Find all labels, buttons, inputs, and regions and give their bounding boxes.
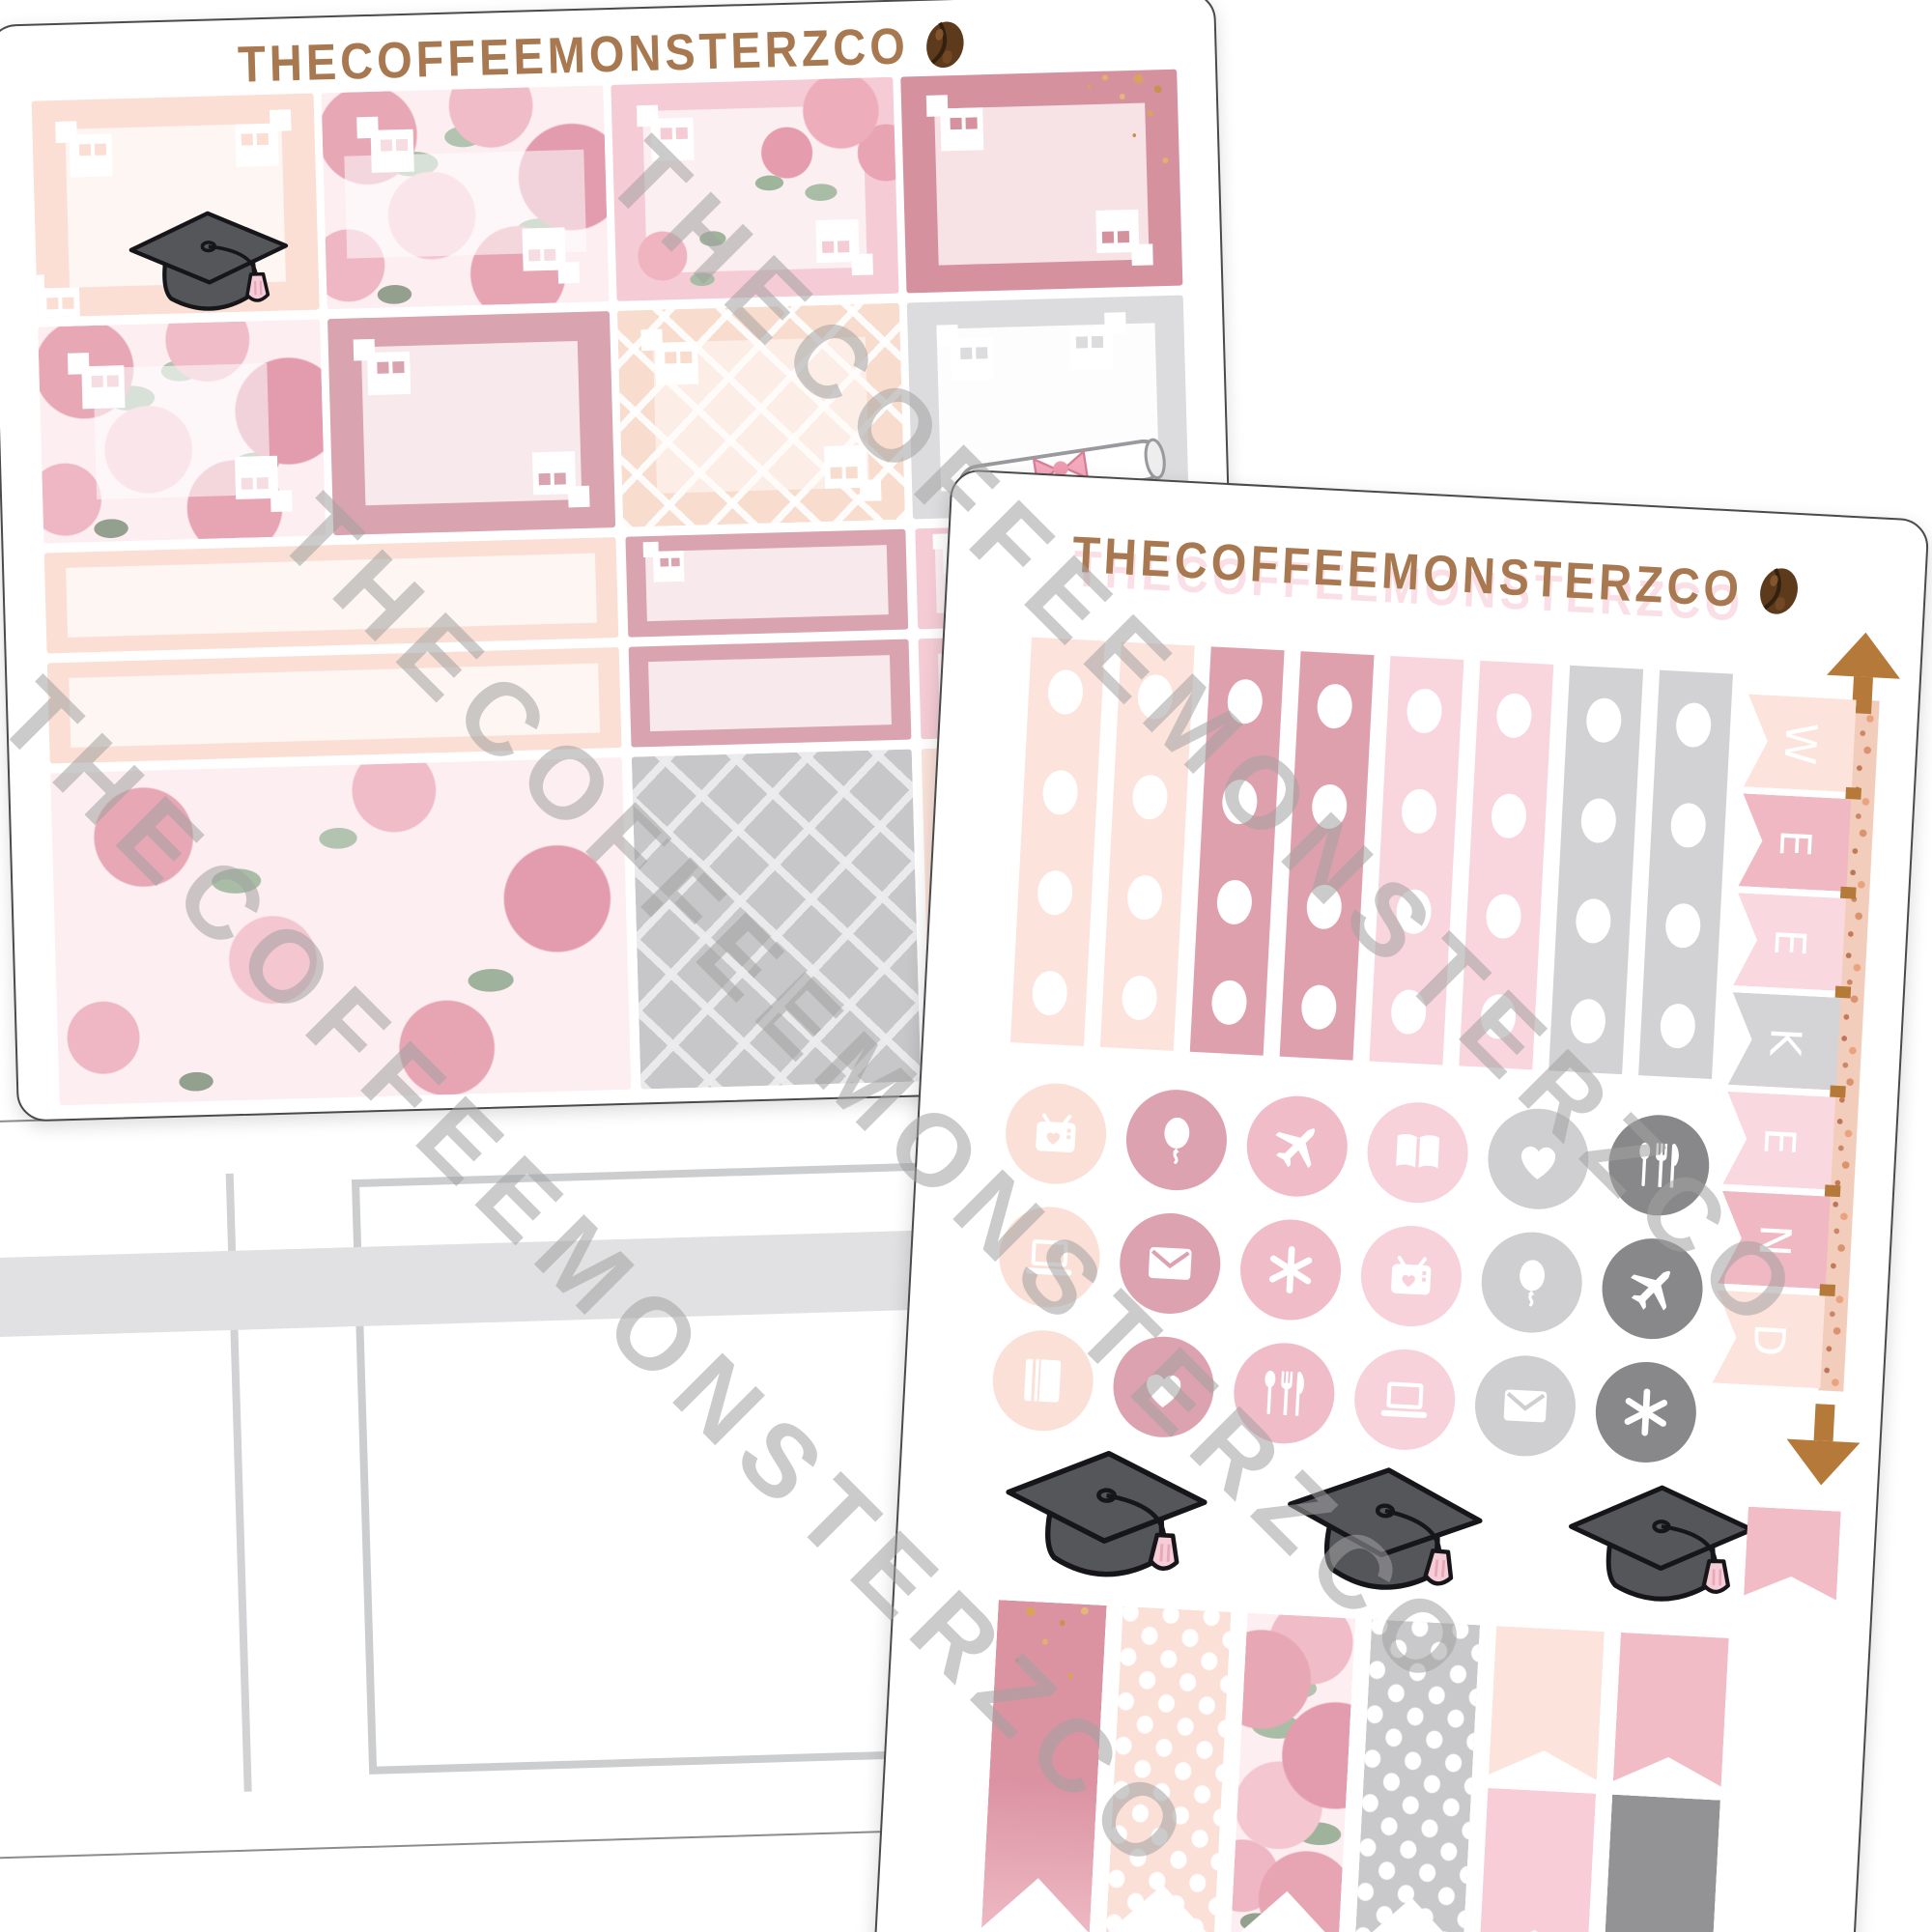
brand-title: THECOFFEEMONSTERZCO [1071,524,1745,618]
asterisk-icon [1237,1217,1343,1322]
small-page-flag-sticker [1744,1507,1841,1601]
checklist-dot [1121,975,1157,1021]
checklist-dot [1316,683,1352,729]
sticker-full-box-floral [321,85,609,309]
banner-connector [1825,1184,1841,1197]
sticker-quarter-box-rose [625,529,908,638]
weekend-pennant-flag: W [1744,694,1857,792]
asterisk-icon [1593,1359,1698,1464]
down-arrow-icon [1784,1403,1861,1488]
checklist-dot [1300,984,1337,1031]
checklist-dot [1032,970,1068,1016]
checklist-flag-sticker [1638,670,1733,1079]
banner-connector [1819,1284,1835,1296]
graduation-cap-sticker [117,194,300,336]
airplane-icon [1244,1094,1350,1199]
checklist-dot [1491,793,1527,839]
laptop-icon [1352,1347,1458,1452]
coffee-bean-icon [920,15,972,73]
tv-icon [1358,1223,1463,1328]
page-flag-sticker [1479,1788,1596,1932]
sticker-full-box-rose-border [327,311,615,535]
weekend-letter: E [1754,1126,1804,1155]
checklist-dot [1670,803,1707,849]
checklist-dot [1485,894,1521,940]
checklist-dot [1660,1003,1696,1049]
product-photo-stage: THECOFFEEMONSTERZCO [0,0,1932,1932]
page-flag-sticker [1489,1626,1605,1780]
coffee-bean-icon [1751,560,1806,621]
book-open-icon [1365,1100,1470,1206]
sticker-full-box-rose-glitter [900,70,1182,294]
weekend-letter: E [1764,927,1814,956]
envelope-icon [1472,1353,1577,1459]
checklist-dot [1401,788,1437,835]
weekend-banner-sticker: WEEKEND [1747,626,1901,634]
weekend-pennant-flag: E [1733,893,1846,991]
banner-connector [1845,787,1861,800]
banner-connector [1840,887,1857,899]
floral-page-flag-sticker [1231,1613,1356,1932]
checklist-dot [1580,798,1617,844]
checklist-dot [1126,874,1163,921]
banner-connector [1830,1085,1846,1097]
checklist-dot [1216,879,1253,925]
sticker-full-box-floral-center [38,319,326,543]
weekend-pennant-flag: E [1738,793,1851,892]
checklist-dot [1041,769,1078,815]
weekend-letter: W [1775,721,1826,765]
checklist-dot [1664,902,1701,949]
page-flag-sticker [1604,1795,1720,1932]
weekend-letter: E [1770,828,1820,857]
checklist-dot [1675,702,1712,749]
weekend-pennant-flag: K [1728,992,1841,1091]
checklist-dot [1585,697,1622,744]
checklist-dot [1406,688,1442,734]
sticker-quarter-box-rose [629,639,912,748]
weekend-pennant-flag: E [1722,1092,1835,1190]
checklist-dot [1131,774,1168,820]
checklist-dot [1575,898,1611,945]
balloon-icon [1123,1087,1229,1192]
weekend-letter: K [1759,1026,1809,1056]
checklist-dot [1495,693,1532,739]
checklist-dot [1210,980,1247,1026]
checklist-dot [1037,869,1073,916]
graduation-cap-sticker [1555,1466,1768,1629]
balloon-icon [1479,1230,1584,1335]
banner-connector [1835,986,1852,999]
page-flag-sticker [1613,1633,1729,1787]
